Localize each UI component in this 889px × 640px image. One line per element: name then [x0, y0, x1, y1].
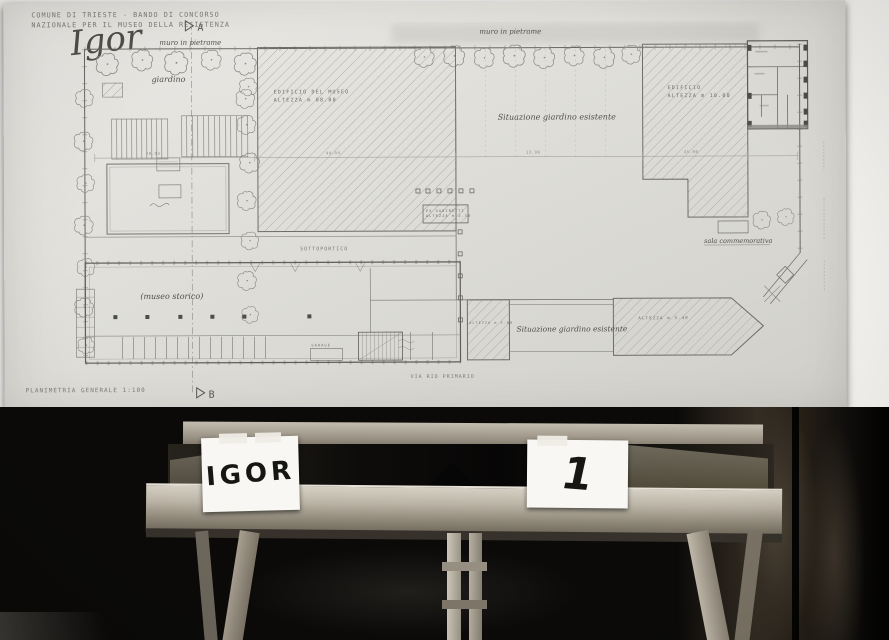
panel-number-card: 1	[527, 440, 629, 509]
panel-number-text: 1	[557, 447, 598, 500]
trestle-center-post-right	[469, 533, 482, 640]
motto-card-text: IGOR	[205, 456, 296, 493]
tape-strip	[537, 436, 567, 446]
photograph-of-plan-on-trestle: COMUNE DI TRIESTE - BANDO DI CONCORSO NA…	[0, 0, 889, 640]
trestle-center-post-left	[447, 533, 461, 640]
trestle-cross-rung-upper	[442, 562, 487, 571]
trestle-leg-right-back	[734, 531, 763, 640]
tape-strip	[219, 433, 247, 444]
wooden-trestle	[0, 0, 889, 640]
trestle-leg-left-front	[222, 530, 259, 640]
trestle-leg-left-back	[195, 531, 218, 640]
tape-strip	[255, 432, 281, 443]
trestle-leg-right-front	[687, 530, 730, 640]
motto-card: IGOR	[201, 436, 300, 513]
trestle-cross-rung-lower	[442, 600, 487, 609]
